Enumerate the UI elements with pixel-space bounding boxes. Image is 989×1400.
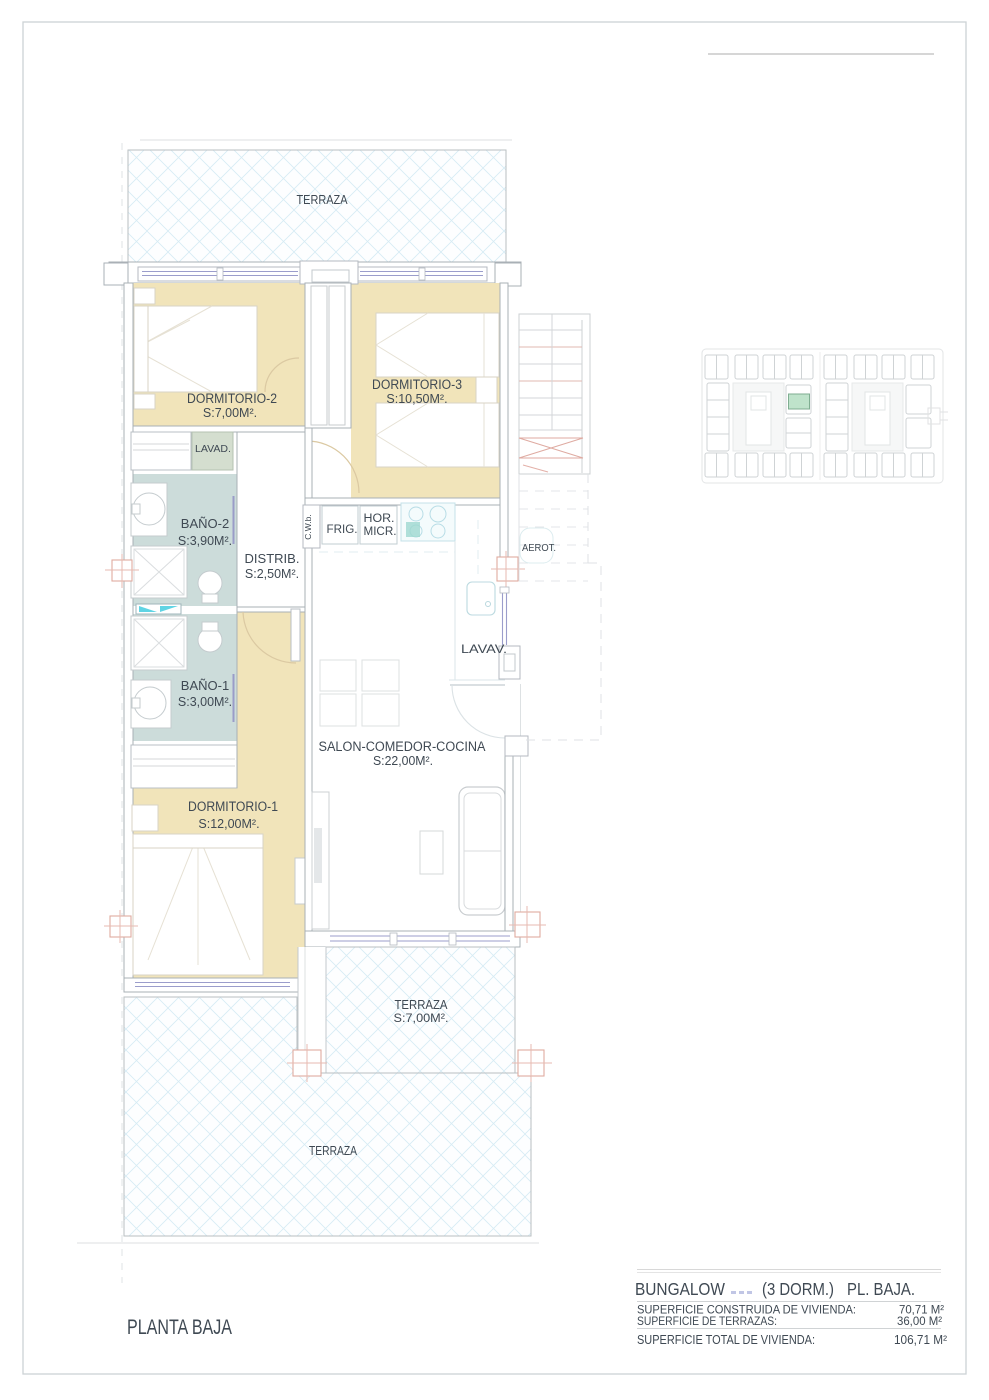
svg-text:AEROT.: AEROT. [522, 542, 556, 554]
svg-text:S:2,50M².: S:2,50M². [245, 567, 299, 581]
svg-text:HOR.: HOR. [364, 513, 395, 525]
svg-text:BUNGALOW: BUNGALOW [635, 1279, 725, 1299]
svg-text:S:7,00M².: S:7,00M². [394, 1011, 449, 1025]
svg-text:(3 DORM.): (3 DORM.) [762, 1279, 834, 1299]
svg-text:DORMITORIO-3: DORMITORIO-3 [372, 377, 462, 392]
svg-text:MICR.: MICR. [364, 526, 397, 538]
svg-text:C.W.b.: C.W.b. [303, 514, 313, 540]
svg-text:S:3,00M².: S:3,00M². [178, 695, 232, 709]
svg-text:LAVAV.: LAVAV. [461, 644, 507, 656]
svg-text:S:3,90M².: S:3,90M². [178, 534, 232, 548]
svg-text:PL. BAJA.: PL. BAJA. [847, 1279, 915, 1299]
svg-text:FRIG.: FRIG. [327, 524, 358, 536]
svg-text:S:22,00M².: S:22,00M². [373, 754, 433, 768]
svg-text:TERRAZA: TERRAZA [297, 193, 349, 207]
svg-text:SALON-COMEDOR-COCINA: SALON-COMEDOR-COCINA [319, 739, 486, 754]
svg-text:BAÑO-2: BAÑO-2 [181, 516, 229, 531]
svg-text:DORMITORIO-1: DORMITORIO-1 [188, 799, 278, 814]
svg-text:LAVAD.: LAVAD. [195, 443, 231, 455]
svg-text:DISTRIB.: DISTRIB. [245, 551, 300, 566]
svg-text:S:10,50M².: S:10,50M². [386, 392, 447, 406]
svg-text:SUPERFICIE TOTAL DE VIVIENDA:: SUPERFICIE TOTAL DE VIVIENDA: [637, 1332, 815, 1347]
svg-text:TERRAZA: TERRAZA [309, 1144, 358, 1158]
svg-text:S:7,00M².: S:7,00M². [203, 406, 257, 420]
svg-text:DORMITORIO-2: DORMITORIO-2 [187, 391, 277, 406]
svg-text:S:12,00M².: S:12,00M². [198, 817, 259, 831]
svg-text:PLANTA BAJA: PLANTA BAJA [127, 1316, 232, 1339]
svg-text:36,00 M²: 36,00 M² [897, 1314, 942, 1328]
svg-text:106,71 M²: 106,71 M² [894, 1332, 948, 1347]
svg-text:BAÑO-1: BAÑO-1 [181, 678, 229, 693]
svg-text:TERRAZA: TERRAZA [395, 998, 449, 1012]
svg-text:SUPERFICIE DE TERRAZAS:: SUPERFICIE DE TERRAZAS: [637, 1314, 777, 1328]
